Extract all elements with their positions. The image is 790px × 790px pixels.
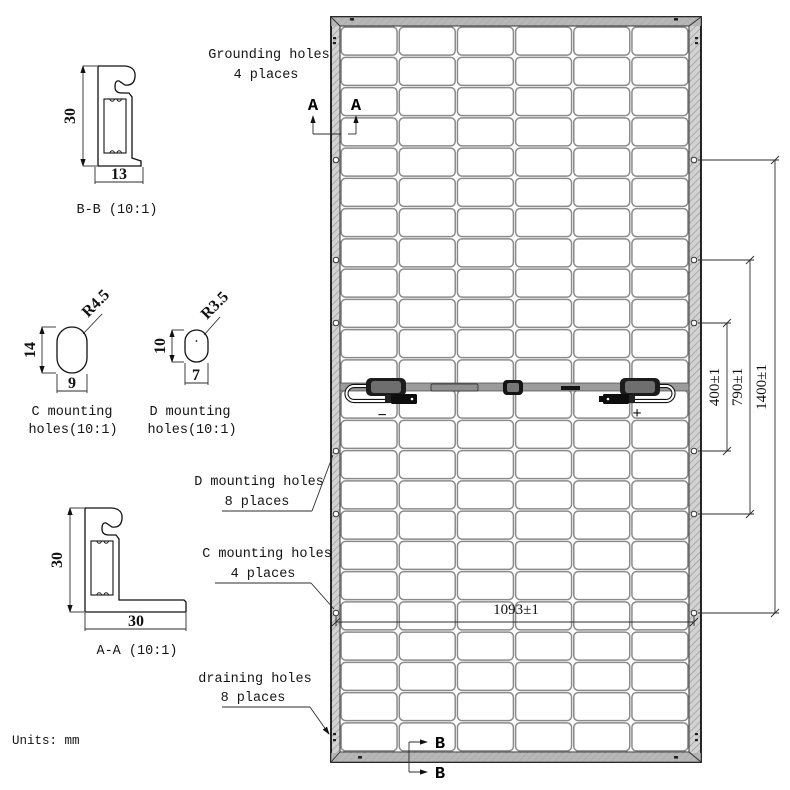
d-mounting-hole [691, 320, 697, 326]
detail-d-hole: 10 7 R3.5 D mounting holes(10:1) [147, 288, 236, 438]
grounding-hole-mark [695, 42, 698, 44]
grounding-hole-mark [695, 37, 698, 39]
connector-pin [411, 398, 414, 401]
aa-profile-label: A-A (10:1) [96, 644, 177, 659]
junction-box-center-lid [507, 383, 519, 392]
connector-tip [599, 396, 603, 402]
section-a-label: A [351, 97, 362, 116]
drawing-canvas: − + 1093±1 [0, 0, 790, 790]
draining-hole-mark [695, 733, 698, 735]
draining-hole-mark [333, 733, 336, 735]
c-hole-label2: holes(10:1) [28, 423, 117, 438]
c-mounting-hole [691, 610, 697, 616]
section-a-label: A [308, 97, 319, 116]
d-hole-label2: holes(10:1) [147, 423, 236, 438]
panel-rear-view: − + 1093±1 [331, 17, 701, 762]
callout-d-line2: 8 places [225, 495, 290, 510]
junction-clip [561, 386, 580, 390]
c-hole-width-dim: 9 [68, 375, 76, 392]
grounding-hole-mark [333, 37, 336, 39]
d-mounting-hole [691, 511, 697, 517]
detail-aa-profile: 30 30 A-A (10:1) [49, 508, 186, 659]
section-b-label: B [435, 735, 445, 754]
d-mounting-hole [333, 511, 339, 517]
d-hole-label1: D mounting [149, 405, 230, 420]
callout-grounding-line2: 4 places [234, 68, 299, 83]
bb-profile-cavity [104, 99, 126, 153]
d-mounting-hole [691, 257, 697, 263]
cable-gland [629, 395, 635, 403]
callout-draining-holes: draining holes 8 places [198, 672, 329, 734]
dim-790-label: 790±1 [730, 368, 746, 406]
connector-pin [607, 398, 610, 401]
bb-profile-label: B-B (10:1) [76, 203, 157, 218]
c-mounting-hole [691, 157, 697, 163]
right-dimensions: 400±1 790±1 1400±1 [698, 156, 779, 617]
callout-d-mounting-holes: D mounting holes 8 places [194, 455, 333, 511]
draining-hole-mark [333, 739, 336, 741]
callout-c-line2: 4 places [231, 567, 296, 582]
polarity-plus-label: + [632, 405, 641, 422]
polarity-minus-label: − [377, 407, 386, 424]
callout-c-line1: C mounting holes [202, 547, 332, 562]
draining-hole-mark [674, 756, 678, 759]
d-hole-radius-dim: R3.5 [198, 288, 232, 322]
c-mounting-hole [333, 610, 339, 616]
junction-box-right-lid [625, 381, 655, 393]
dim-1400-label: 1400±1 [754, 364, 770, 410]
d-hole-height-dim: 10 [152, 338, 169, 354]
aa-width-dim: 30 [128, 613, 144, 630]
d-hole-width-dim: 7 [192, 367, 200, 384]
aa-height-dim: 30 [49, 552, 66, 568]
callout-grounding-line1: Grounding holes [208, 48, 330, 63]
aa-profile-cavity [91, 541, 113, 595]
dim-1093-label: 1093±1 [493, 602, 539, 618]
units-note: Units: mm [12, 734, 80, 748]
c-hole-label1: C mounting [31, 405, 112, 420]
draining-hole-mark [358, 756, 362, 759]
d-mounting-hole [333, 320, 339, 326]
c-hole-height-dim: 14 [22, 342, 39, 358]
technical-drawing: − + 1093±1 [0, 0, 790, 790]
dim-400-label: 400±1 [707, 368, 723, 406]
bb-width-dim: 13 [111, 166, 127, 183]
d-mounting-hole [333, 257, 339, 263]
grounding-hole-mark [674, 18, 678, 21]
d-hole-center-mark [196, 340, 198, 342]
c-mounting-hole [333, 157, 339, 163]
bb-height-dim: 30 [62, 108, 79, 124]
callout-draining-line2: 8 places [221, 691, 286, 706]
draining-hole-mark [695, 739, 698, 741]
c-hole-shape [57, 327, 87, 373]
grounding-hole-mark [333, 42, 336, 44]
detail-bb-profile: 30 13 B-B (10:1) [62, 66, 158, 218]
c-hole-radius-dim: R4.5 [79, 286, 113, 320]
callout-grounding-holes: Grounding holes 4 places [208, 48, 330, 83]
callout-d-line1: D mounting holes [194, 475, 324, 490]
d-mounting-hole [691, 448, 697, 454]
callout-c-mounting-holes: C mounting holes 4 places [202, 547, 334, 609]
callout-draining-line1: draining holes [198, 672, 311, 687]
junction-box-left-lid [371, 381, 401, 393]
junction-rail [431, 384, 478, 391]
grounding-hole-mark [350, 18, 354, 21]
detail-c-hole: 14 9 R4.5 C mounting holes(10:1) [22, 286, 118, 438]
cable-gland [385, 395, 391, 403]
section-b-label: B [435, 765, 445, 784]
d-mounting-hole [333, 448, 339, 454]
